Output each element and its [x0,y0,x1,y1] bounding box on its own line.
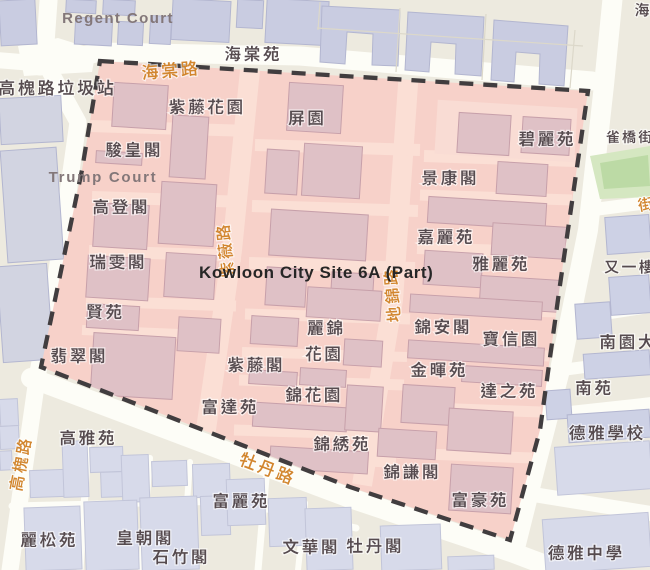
svg-text:Trump Court: Trump Court [49,169,158,186]
svg-text:Regent Court: Regent Court [62,10,174,27]
svg-text:Kowloon City Site 6A (Part): Kowloon City Site 6A (Part) [199,263,433,282]
